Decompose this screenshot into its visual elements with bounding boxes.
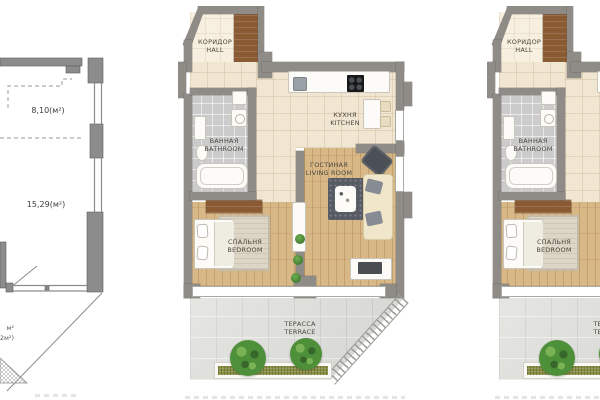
apartment-floor-plan: КОРИДОР HALL КУХНЯ KITCHEN ВАННАЯ BATHRO… (178, 6, 412, 396)
apartment-floor-plan: КОРИДОР HALL КУХНЯ KITCHEN ВАННАЯ BATHRO… (487, 6, 600, 396)
bedroom-label-ru: СПАЛЬНЯ (514, 238, 594, 246)
terrace-label-en: TERRACE (569, 328, 600, 336)
edge-partial-line2: 2м²) (0, 334, 14, 344)
window (395, 110, 404, 141)
edge-partial-label: м² 2м²) (0, 324, 14, 344)
washing-machine (231, 109, 247, 127)
area-label-main: 15,29(м²) (14, 200, 78, 209)
wall (258, 6, 264, 58)
wall (487, 62, 495, 98)
hall-label: КОРИДОР HALL (185, 38, 245, 54)
terrace-label: ТЕРАССА TERRACE (569, 320, 600, 336)
wall (567, 6, 573, 58)
entry-floor (190, 62, 256, 90)
wall (571, 62, 600, 72)
potted-plant (291, 273, 301, 283)
bathroom-label-ru: ВАННАЯ (193, 137, 255, 145)
entry-floor (499, 62, 565, 90)
shower-unit (541, 91, 556, 105)
terrace-glazing (501, 286, 600, 297)
terrace-label-ru: ТЕРАССА (569, 320, 600, 328)
outline-terrace-edge (7, 293, 102, 391)
wall (198, 6, 262, 14)
kitchen-label: КУХНЯ KITCHEN (305, 111, 385, 127)
area-label-top: 8,10(м²) (20, 106, 76, 115)
tree (539, 340, 575, 376)
living-room-label: ГОСТИНАЯ LIVING ROOM (289, 161, 369, 177)
hall-label-ru: КОРИДОР (494, 38, 554, 46)
outline-plan: 8,10(м²) 15,29(м²) м² 2м²) (0, 30, 110, 400)
shower-unit (232, 91, 247, 105)
washing-machine (540, 109, 556, 127)
terrace-label: ТЕРАССА TERRACE (260, 320, 340, 336)
pillow (197, 224, 209, 239)
kitchen-sink (293, 77, 307, 91)
bedroom-label-ru: СПАЛЬНЯ (205, 238, 285, 246)
terrace-label-en: TERRACE (260, 328, 340, 336)
kitchen-label-en: KITCHEN (305, 119, 385, 127)
bathroom-label: ВАННАЯ BATHROOM (502, 137, 564, 153)
window (395, 156, 404, 192)
bedroom-label: СПАЛЬНЯ BEDROOM (205, 238, 285, 254)
tv (358, 262, 382, 274)
potted-plant (295, 234, 305, 244)
stove (347, 75, 364, 92)
outline-hatch (0, 358, 27, 383)
wall (499, 192, 565, 200)
hall-label: КОРИДОР HALL (494, 38, 554, 54)
edge-partial-line1: м² (0, 324, 14, 334)
wall (190, 192, 256, 200)
bathtub (505, 163, 557, 189)
coffee-table (335, 186, 356, 212)
bathroom-label-en: BATHROOM (502, 145, 564, 153)
bedroom-label-en: BEDROOM (205, 246, 285, 254)
tree (230, 340, 266, 376)
terrace-label-ru: ТЕРАССА (260, 320, 340, 328)
bathroom-label-ru: ВАННАЯ (502, 137, 564, 145)
floor-plans-page: 8,10(м²) 15,29(м²) м² 2м²) (0, 0, 600, 400)
wall (396, 192, 404, 298)
console-shelf (292, 202, 306, 252)
potted-plant (293, 255, 303, 265)
wall (507, 6, 571, 14)
corridor-floor (565, 146, 600, 208)
pillow (506, 224, 518, 239)
bedroom-label-en: BEDROOM (514, 246, 594, 254)
wall (396, 141, 404, 156)
hall-label-en: HALL (185, 46, 245, 54)
hall-label-en: HALL (494, 46, 554, 54)
living-room-label-ru: ГОСТИНАЯ (289, 161, 369, 169)
bathtub (196, 163, 248, 189)
outline-door-swing (10, 266, 37, 288)
detailed-plan-full: КОРИДОР HALL КУХНЯ KITCHEN ВАННАЯ BATHRO… (178, 6, 416, 396)
wall (404, 192, 412, 218)
tree (290, 338, 322, 370)
cropped-bottom-artifact (35, 394, 80, 397)
terrace-glazing (192, 286, 386, 297)
living-room-label-en: LIVING ROOM (289, 169, 369, 177)
bedroom-label: СПАЛЬНЯ BEDROOM (514, 238, 594, 254)
cropped-bottom-artifact (185, 396, 405, 399)
detailed-plan-cropped: КОРИДОР HALL КУХНЯ KITCHEN ВАННАЯ BATHRO… (487, 6, 600, 396)
cropped-bottom-artifact (495, 396, 600, 399)
outline-plan-drawing (0, 30, 110, 400)
bedroom-wardrobe (515, 200, 571, 213)
bathroom-label: ВАННАЯ BATHROOM (193, 137, 255, 153)
outline-walls (0, 58, 103, 292)
bedroom-wardrobe (206, 200, 262, 213)
wall (404, 82, 412, 106)
kitchen-label-ru: КУХНЯ (305, 111, 385, 119)
wall (178, 62, 186, 98)
hall-label-ru: КОРИДОР (185, 38, 245, 46)
bathroom-label-en: BATHROOM (193, 145, 255, 153)
wall (396, 62, 404, 110)
